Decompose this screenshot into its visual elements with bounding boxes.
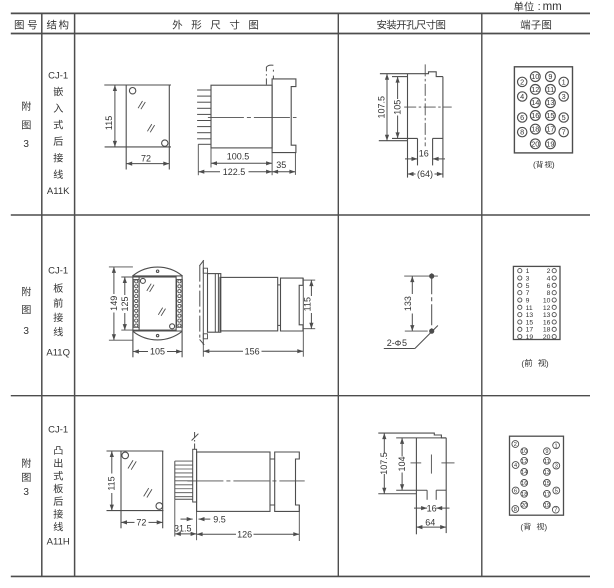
- svg-text:12: 12: [521, 459, 527, 465]
- svg-text:17: 17: [544, 492, 550, 498]
- svg-text:18: 18: [521, 492, 527, 498]
- svg-text:15: 15: [526, 319, 534, 326]
- svg-text:20: 20: [531, 139, 539, 148]
- svg-text:105: 105: [392, 100, 402, 115]
- svg-text:12: 12: [531, 85, 539, 94]
- svg-text:7: 7: [554, 508, 557, 514]
- svg-text:11: 11: [547, 85, 555, 94]
- svg-text:2-: 2-: [387, 338, 395, 348]
- svg-text:13: 13: [526, 312, 534, 319]
- svg-text:6: 6: [520, 113, 524, 122]
- svg-text:5: 5: [402, 338, 407, 348]
- svg-text:16: 16: [427, 503, 437, 513]
- svg-text:CJ-1: CJ-1: [48, 71, 68, 82]
- svg-text:A11H: A11H: [47, 537, 70, 548]
- svg-text:(: (: [533, 160, 536, 170]
- svg-text:35: 35: [276, 160, 286, 170]
- svg-text:9: 9: [526, 297, 530, 304]
- svg-text:15: 15: [544, 481, 550, 487]
- svg-text:11: 11: [526, 305, 533, 312]
- svg-text:2: 2: [547, 268, 551, 275]
- svg-text:8: 8: [547, 290, 551, 297]
- svg-text:72: 72: [136, 517, 146, 527]
- svg-text:104: 104: [397, 456, 407, 471]
- svg-text:122.5: 122.5: [223, 167, 246, 177]
- svg-text:115: 115: [104, 116, 114, 130]
- svg-text:12: 12: [543, 305, 551, 312]
- svg-text:105: 105: [150, 347, 165, 357]
- svg-text:3: 3: [23, 326, 29, 337]
- svg-text:18: 18: [531, 125, 539, 134]
- svg-text:13: 13: [543, 312, 551, 319]
- svg-text:5: 5: [526, 283, 530, 290]
- svg-text:4: 4: [520, 92, 524, 101]
- svg-text:9: 9: [548, 72, 552, 81]
- svg-text:2: 2: [514, 442, 517, 448]
- svg-text:8: 8: [520, 128, 524, 137]
- svg-text:31.5: 31.5: [174, 523, 192, 533]
- svg-text:17: 17: [546, 125, 554, 134]
- svg-text:(: (: [521, 358, 524, 368]
- svg-text:20: 20: [521, 503, 527, 509]
- svg-text:): ): [552, 160, 555, 170]
- svg-text:4: 4: [514, 463, 517, 469]
- svg-text:115: 115: [303, 297, 313, 311]
- svg-text:19: 19: [526, 334, 534, 341]
- svg-text:156: 156: [245, 347, 260, 357]
- svg-text:Φ: Φ: [395, 339, 402, 348]
- svg-text:16: 16: [521, 481, 527, 487]
- svg-text:149: 149: [109, 296, 119, 311]
- svg-text:3: 3: [555, 464, 558, 470]
- svg-text:16: 16: [531, 111, 539, 120]
- svg-text:13: 13: [544, 470, 550, 476]
- svg-text:): ): [544, 522, 547, 532]
- svg-text:3: 3: [23, 139, 29, 150]
- svg-text:19: 19: [544, 503, 550, 509]
- svg-text:16: 16: [419, 149, 429, 159]
- svg-text:125: 125: [120, 296, 130, 311]
- svg-text:CJ-1: CJ-1: [48, 265, 68, 276]
- svg-text:A11K: A11K: [47, 186, 70, 197]
- svg-text:107.5: 107.5: [377, 96, 387, 119]
- svg-text:A11Q: A11Q: [46, 348, 70, 359]
- svg-text:18: 18: [543, 327, 551, 334]
- svg-text:126: 126: [237, 529, 252, 539]
- svg-text:CJ-1: CJ-1: [48, 425, 68, 436]
- svg-text:10: 10: [543, 297, 551, 304]
- svg-text:3: 3: [526, 275, 530, 282]
- svg-text:7: 7: [562, 128, 566, 137]
- svg-text:107.5: 107.5: [379, 452, 389, 475]
- svg-text:3: 3: [562, 92, 566, 101]
- svg-text::: :: [538, 1, 541, 13]
- svg-text:1: 1: [562, 77, 566, 86]
- svg-text:2: 2: [520, 77, 524, 86]
- svg-text:(64): (64): [417, 169, 433, 179]
- svg-text:11: 11: [544, 459, 550, 465]
- svg-text:4: 4: [547, 275, 551, 282]
- svg-text:16: 16: [543, 319, 551, 326]
- svg-text:10: 10: [531, 72, 539, 81]
- svg-text:7: 7: [526, 290, 530, 297]
- svg-text:9.5: 9.5: [213, 514, 226, 524]
- svg-text:9: 9: [545, 449, 548, 455]
- svg-text:6: 6: [547, 283, 551, 290]
- svg-text:100.5: 100.5: [227, 152, 250, 162]
- svg-text:17: 17: [526, 327, 534, 334]
- svg-text:1: 1: [526, 268, 530, 275]
- svg-text:13: 13: [546, 98, 554, 107]
- svg-text:8: 8: [514, 507, 517, 513]
- svg-text:mm: mm: [543, 1, 562, 13]
- svg-text:5: 5: [555, 489, 558, 495]
- svg-text:10: 10: [521, 449, 527, 455]
- svg-text:133: 133: [403, 296, 413, 311]
- svg-text:): ): [546, 358, 549, 368]
- svg-text:20: 20: [543, 334, 551, 341]
- svg-text:(: (: [520, 522, 523, 532]
- svg-text:115: 115: [106, 476, 116, 490]
- svg-text:14: 14: [521, 470, 527, 476]
- svg-text:64: 64: [425, 518, 435, 528]
- svg-text:72: 72: [141, 154, 151, 164]
- svg-text:15: 15: [546, 111, 554, 120]
- svg-text:19: 19: [546, 139, 554, 148]
- svg-text:3: 3: [23, 487, 29, 498]
- svg-text:14: 14: [531, 98, 539, 107]
- svg-text:5: 5: [562, 113, 566, 122]
- svg-text:6: 6: [514, 489, 517, 495]
- svg-text:1: 1: [555, 443, 558, 449]
